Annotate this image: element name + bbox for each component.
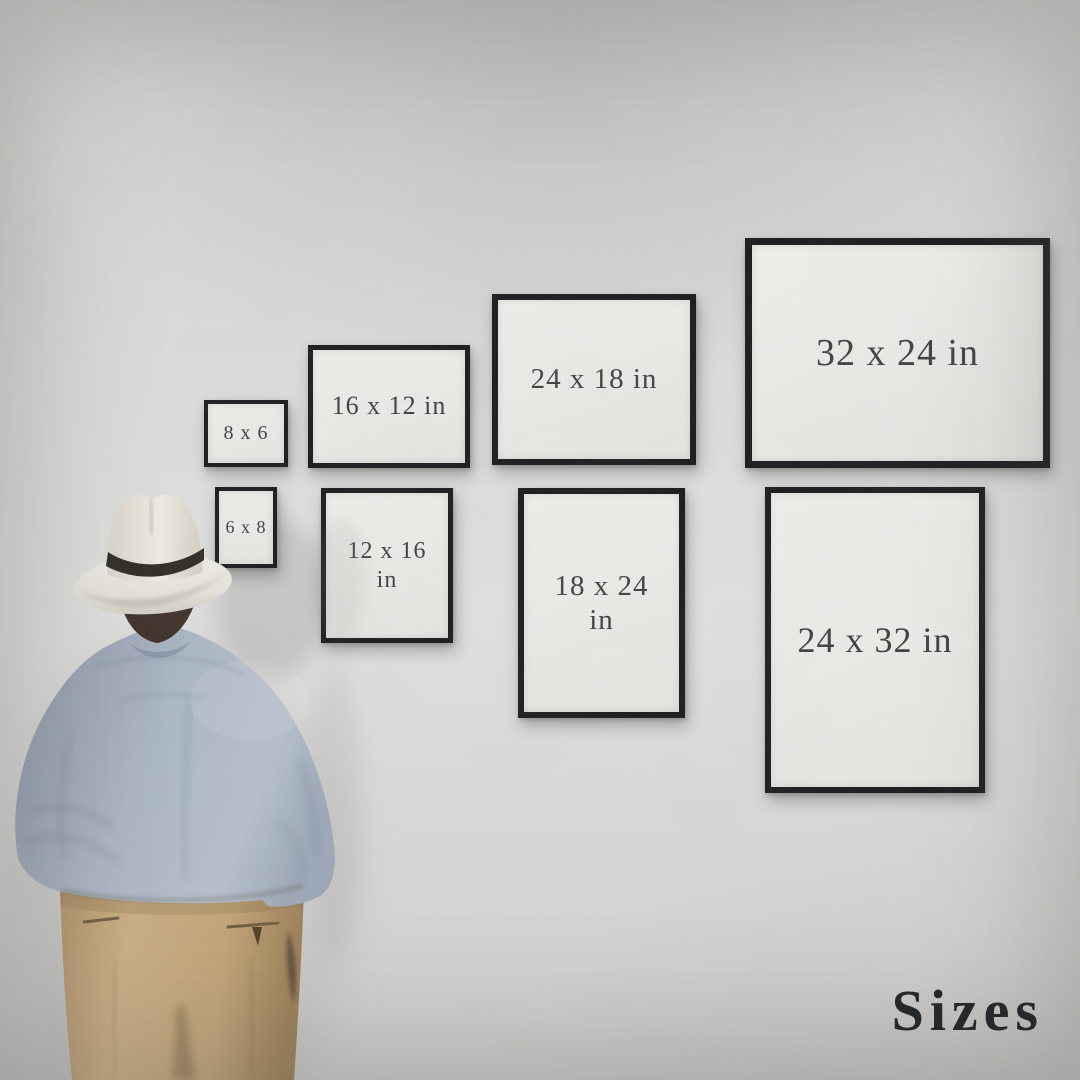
frame-size-label: 18 x 24 in bbox=[540, 569, 664, 637]
size-frame-8x6-landscape: 8 x 6 bbox=[204, 400, 288, 467]
frame-size-label: 32 x 24 in bbox=[816, 331, 979, 376]
frame-size-label: 24 x 32 in bbox=[797, 619, 952, 661]
size-frame-24x18-landscape: 24 x 18 in bbox=[492, 294, 696, 465]
size-frame-24x32-portrait: 24 x 32 in bbox=[765, 487, 985, 793]
frame-size-label: 16 x 12 in bbox=[332, 391, 447, 422]
size-frame-18x24-portrait: 18 x 24 in bbox=[518, 488, 685, 718]
shoulder-highlight bbox=[190, 660, 310, 740]
scene-root: 8 x 6 16 x 12 in 24 x 18 in 32 x 24 in 6… bbox=[0, 0, 1080, 1080]
pants bbox=[60, 888, 304, 1080]
size-frame-32x24-landscape: 32 x 24 in bbox=[745, 238, 1050, 468]
frame-size-label: 8 x 6 bbox=[224, 422, 269, 446]
sizes-watermark: Sizes bbox=[892, 977, 1044, 1044]
size-frame-16x12-landscape: 16 x 12 in bbox=[308, 345, 470, 468]
frame-size-label: 24 x 18 in bbox=[531, 362, 658, 396]
man-figure bbox=[0, 480, 380, 1080]
hat bbox=[72, 494, 234, 619]
shirt bbox=[15, 623, 335, 906]
